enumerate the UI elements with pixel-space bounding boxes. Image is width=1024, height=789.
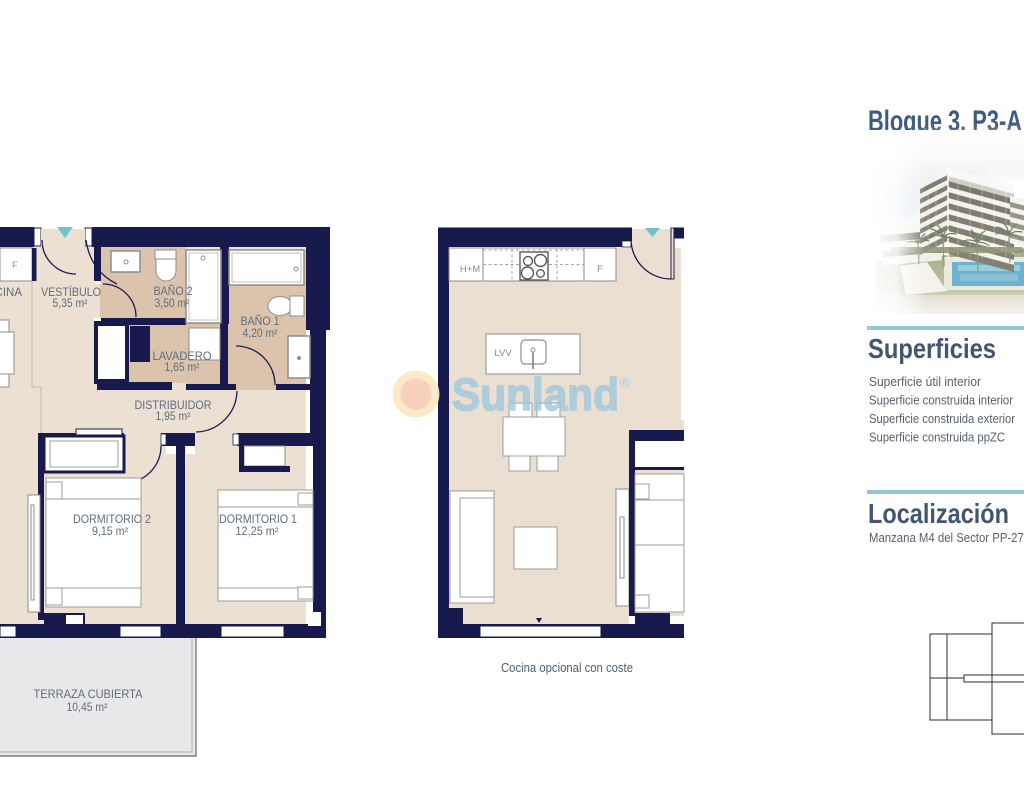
- svg-text:BAÑO 1: BAÑO 1: [241, 315, 280, 328]
- svg-text:BAÑO 2: BAÑO 2: [154, 285, 193, 298]
- svg-text:Superficies: Superficies: [868, 333, 996, 364]
- svg-text:Superficie útil interior: Superficie útil interior: [869, 374, 982, 389]
- svg-text:DORMITORIO 1: DORMITORIO 1: [219, 514, 297, 526]
- svg-text:®: ®: [620, 375, 630, 390]
- svg-text:F: F: [12, 260, 18, 270]
- svg-text:1,95 m²: 1,95 m²: [156, 411, 191, 423]
- svg-text:H+M: H+M: [460, 264, 480, 275]
- svg-text:1,65 m²: 1,65 m²: [165, 362, 200, 374]
- svg-text:Superficie construida interior: Superficie construida interior: [869, 393, 1014, 408]
- svg-text:F: F: [597, 264, 603, 275]
- svg-text:3,50 m²: 3,50 m²: [155, 298, 190, 310]
- svg-text:Superficie construida exterior: Superficie construida exterior: [869, 411, 1016, 426]
- svg-text:Manzana M4 del Sector PP-27.: Manzana M4 del Sector PP-27.: [869, 530, 1024, 545]
- svg-text:LVV: LVV: [494, 348, 512, 359]
- svg-text:DORMITORIO 2: DORMITORIO 2: [73, 514, 151, 526]
- svg-text:12,25 m²: 12,25 m²: [236, 526, 279, 538]
- svg-text:4,20 m²: 4,20 m²: [243, 328, 278, 340]
- svg-text:5,35 m²: 5,35 m²: [53, 298, 88, 310]
- svg-text:Cocina opcional con coste: Cocina opcional con coste: [501, 661, 633, 675]
- svg-text:COCINA: COCINA: [0, 287, 22, 299]
- svg-text:Superficie construida ppZC: Superficie construida ppZC: [869, 430, 1005, 445]
- svg-text:9,15 m²: 9,15 m²: [92, 526, 128, 538]
- svg-text:Sunland: Sunland: [452, 369, 619, 420]
- svg-text:10,45 m²: 10,45 m²: [67, 702, 108, 714]
- svg-text:TERRAZA CUBIERTA: TERRAZA CUBIERTA: [34, 689, 143, 701]
- svg-text:Localización: Localización: [868, 498, 1009, 529]
